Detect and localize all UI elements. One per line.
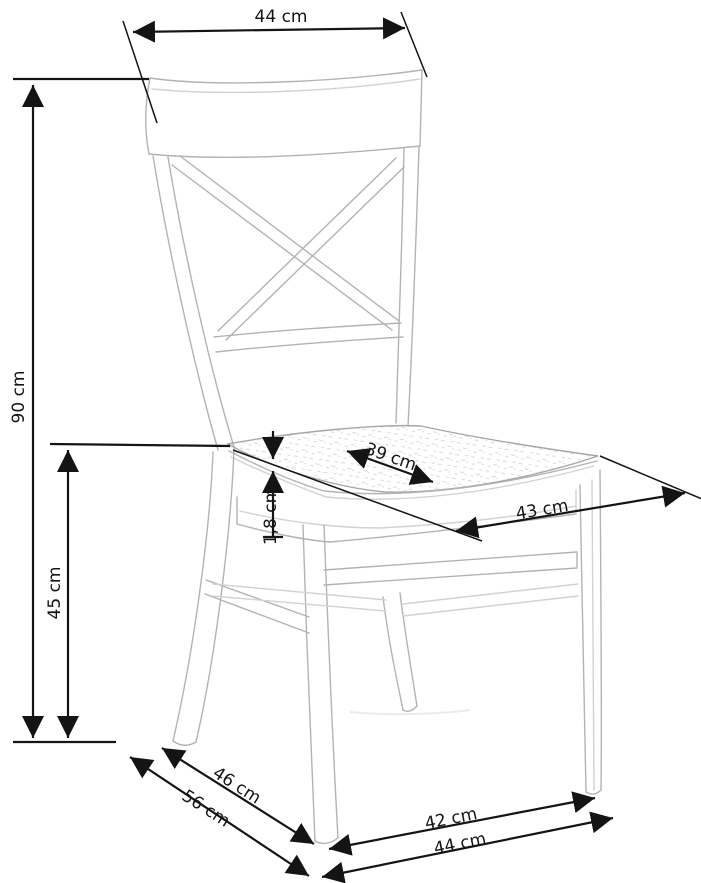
dim-total-width-label: 44 cm <box>432 829 488 859</box>
chair-dimension-drawing: 44 cm 90 cm 45 cm 1,8 cm 39 cm 43 cm 46 … <box>0 0 701 883</box>
dim-seat-height-label: 45 cm <box>45 567 65 620</box>
dim-front-feet-width-label: 42 cm <box>423 804 479 834</box>
back-bottom-rail <box>214 323 403 352</box>
dim-seat-thickness-label: 1,8 cm <box>261 487 281 545</box>
dim-total-depth-label: 56 cm <box>178 786 233 832</box>
stretcher-right <box>403 584 578 616</box>
dim-side-depth-label: 46 cm <box>209 763 264 808</box>
dimension-diagram: 44 cm 90 cm 45 cm 1,8 cm 39 cm 43 cm 46 … <box>0 0 701 883</box>
back-post-left <box>153 156 234 450</box>
cross-bar-a-edge2 <box>180 156 399 321</box>
dim-seat-width-label: 43 cm <box>514 496 570 524</box>
leg-front-left <box>303 525 338 843</box>
dim-back-width <box>123 12 427 123</box>
top-rail-bottom-edge <box>149 146 420 157</box>
dim-back-width-witness-left <box>123 21 157 123</box>
dimension-labels: 44 cm 90 cm 45 cm 1,8 cm 39 cm 43 cm 46 … <box>9 7 570 859</box>
top-rail-inner-line <box>152 79 420 92</box>
dim-back-width-label: 44 cm <box>255 7 308 27</box>
dim-seat-width-witness-right <box>600 456 701 499</box>
dim-back-width-witness-right <box>401 12 427 77</box>
cross-bar-a-edge1 <box>172 165 392 330</box>
top-rail <box>146 70 422 157</box>
cross-bar-b-edge1 <box>218 158 396 331</box>
cross-bar-b-edge2 <box>226 167 404 340</box>
dim-seat-width-arrow <box>456 493 685 531</box>
dim-seat-height-tick-top <box>50 444 230 446</box>
cross-brace-x <box>172 156 404 340</box>
back-post-right <box>396 147 419 426</box>
dim-total-height-label: 90 cm <box>9 371 29 424</box>
leg-front-right <box>580 470 601 794</box>
stretcher-front <box>324 552 577 585</box>
top-rail-top-edge <box>150 70 422 83</box>
dim-back-width-arrow <box>133 28 405 32</box>
top-rail-right-end <box>420 70 422 146</box>
leg-back-right <box>383 593 417 711</box>
dim-total-height <box>13 79 149 742</box>
dim-seat-height <box>50 444 230 738</box>
